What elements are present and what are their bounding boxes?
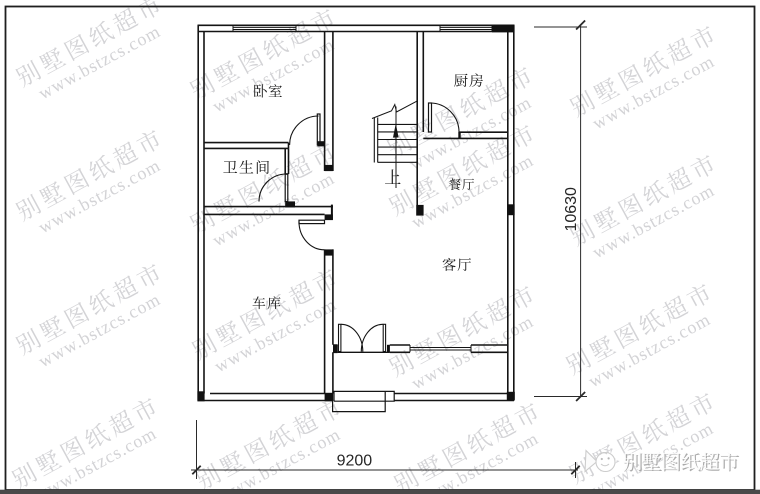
svg-text:www.bstzcs.com: www.bstzcs.com <box>215 424 344 494</box>
svg-text:www.bstzcs.com: www.bstzcs.com <box>413 428 542 494</box>
svg-text:10630: 10630 <box>563 187 580 232</box>
svg-text:www.bstzcs.com: www.bstzcs.com <box>31 423 160 494</box>
svg-text:9200: 9200 <box>337 452 373 469</box>
